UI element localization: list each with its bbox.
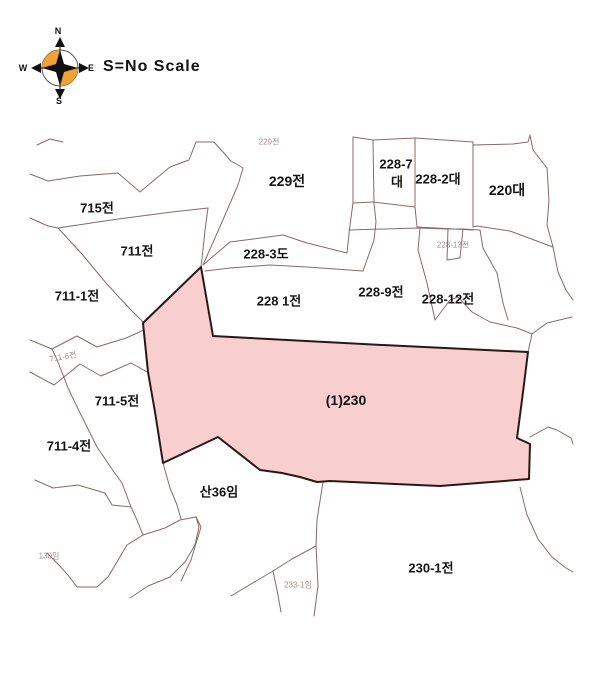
parcel-label-230: (1)230 [326,392,366,408]
parcel-boundary [473,226,553,247]
parcel-label-230-1: 230-1전 [408,558,453,577]
map-canvas [0,0,615,700]
parcel-label-711-1: 711-1전 [55,286,100,305]
cadastral-map-page: { "header": { "scale_note": "S=No Scale"… [0,0,615,700]
parcel-label-228-9: 228-9전 [358,282,403,301]
parcel-label-711: 711전 [121,241,154,260]
compass-west-arrow [31,63,41,73]
parcel-label-228-1: 228 1전 [257,291,302,310]
parcel-boundary [353,137,373,140]
parcel-boundary [35,480,131,507]
parcel-label-229-faint: 229전 [259,137,280,148]
parcel-boundary [30,363,149,385]
compass-north-arrow [55,37,65,47]
compass-west-label: W [19,63,28,73]
compass-east-label: E [88,63,94,73]
parcel-boundary [131,507,143,535]
parcel-boundary [553,247,573,300]
parcel-label-711-4: 711-4전 [47,436,92,455]
parcel-label-220: 220대 [489,180,525,200]
compass-south-label: S [56,96,62,106]
parcel-boundary [30,142,196,192]
parcel-label-228-12: 228-12전 [422,289,474,308]
parcel-boundary [363,140,376,271]
parcel-boundary [30,330,144,349]
parcel-boundary [415,138,473,142]
parcel-label-228-2: 228-2대 [415,169,460,188]
parcel-boundary [37,139,63,145]
parcel-label-233-1-faint: 233-1임 [284,580,312,591]
parcel-boundary [273,571,281,612]
parcel-label-228-13-faint: 228-13전 [437,240,469,251]
compass-rose-icon [31,37,89,99]
parcel-label-711-5: 711-5전 [95,391,140,410]
parcel-boundary [530,427,573,444]
parcel-boundary [480,230,508,320]
parcel-label-san36: 산36임 [200,482,238,501]
parcel-boundary [163,463,181,519]
parcel-boundary [520,487,573,572]
parcel-label-228-7: 228-7 [379,157,412,172]
compass-north-label: N [55,26,62,36]
parcel-boundary [314,482,323,616]
parcel-boundary [473,135,547,168]
parcel-boundary [47,517,196,587]
parcel-label-228-3: 228-3도 [243,244,288,263]
parcel-boundary [353,202,373,203]
parcel-boundary [547,168,553,247]
parcel-label-130-faint: 130임 [39,551,60,562]
parcel-boundary [373,138,415,140]
parcel-label-228-7-suffix: 대 [391,172,403,191]
scale-note: S=No Scale [103,58,201,76]
parcel-boundary [201,208,208,267]
parcel-boundary [181,517,201,581]
parcel-label-229: 229전 [269,171,305,191]
parcel-label-715: 715전 [80,198,114,217]
parcel-boundary [532,317,572,334]
parcel-boundary [347,137,353,253]
parcel-boundary [205,265,363,271]
parcel-boundary [373,202,415,207]
parcel-boundary [30,218,58,228]
parcel-boundary [447,258,460,260]
parcel-boundary [52,349,131,507]
